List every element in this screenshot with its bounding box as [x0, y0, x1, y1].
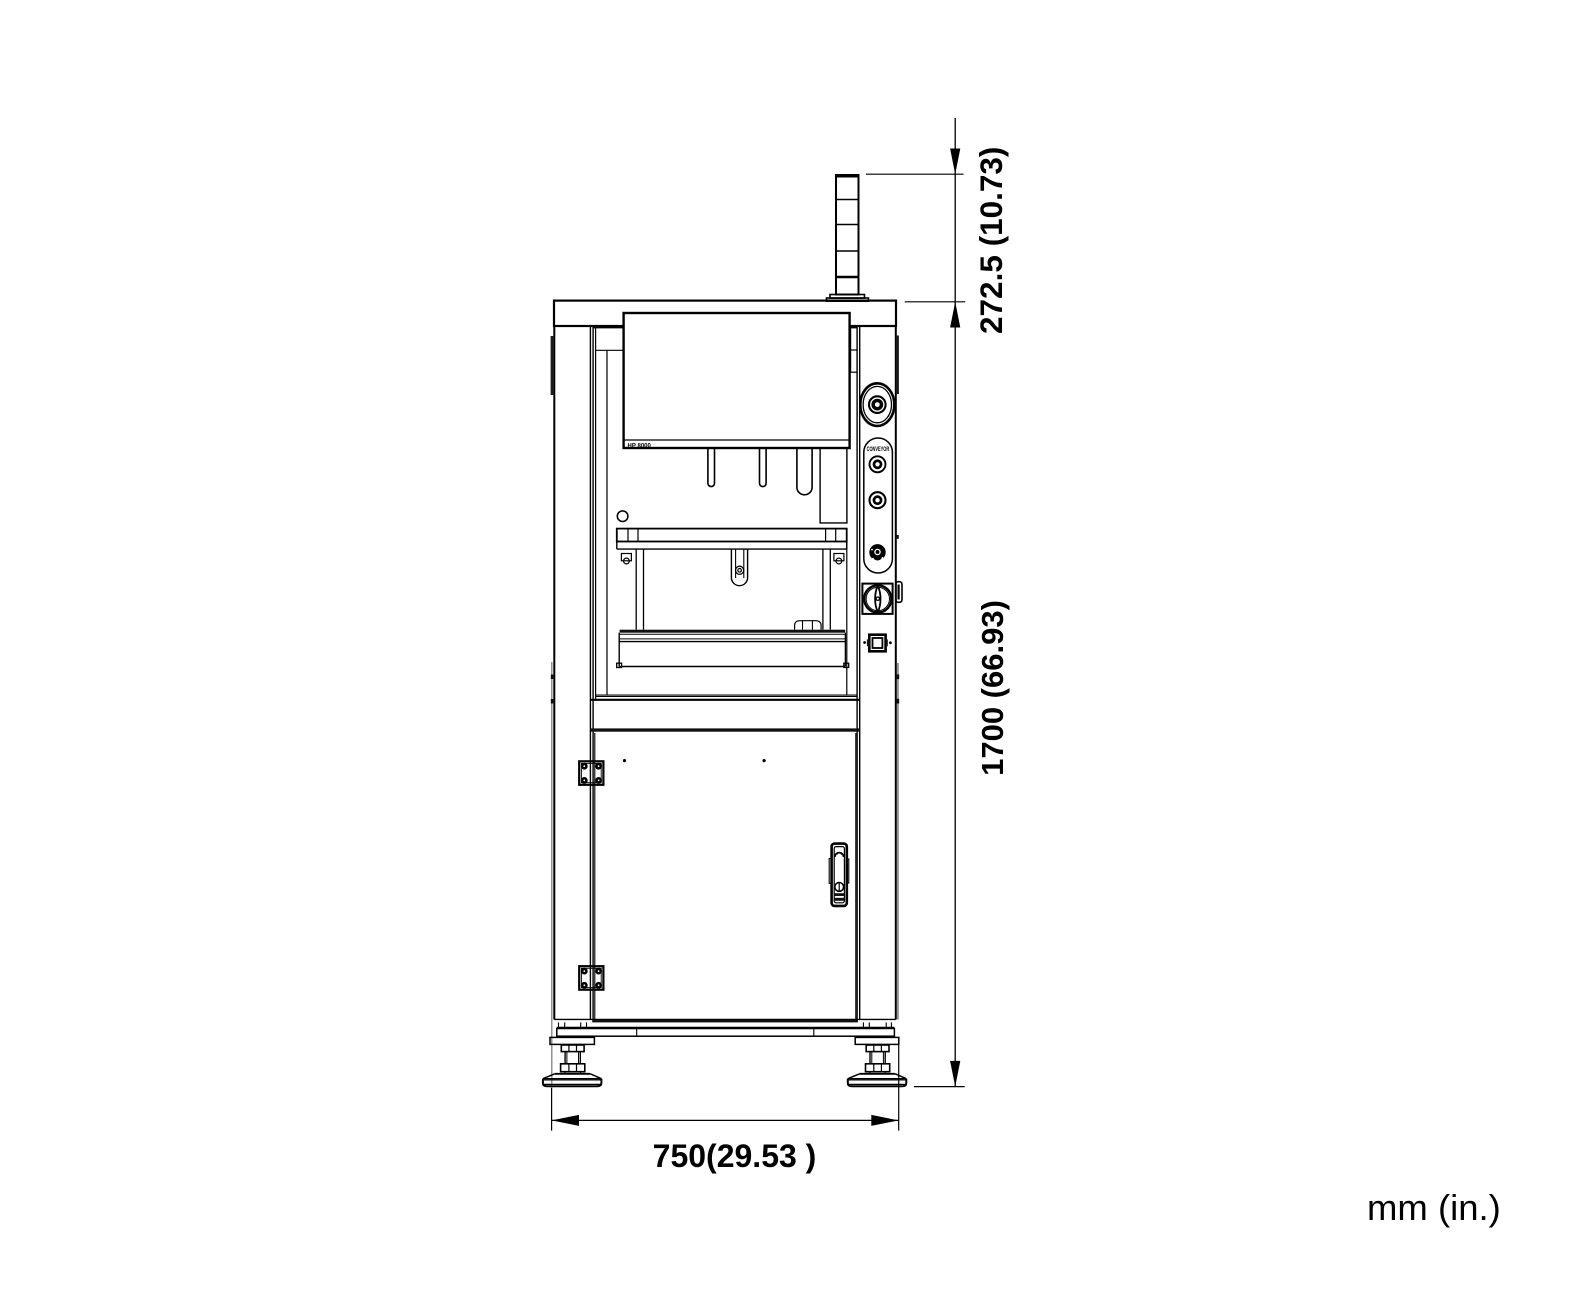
svg-text:272.5 (10.73): 272.5 (10.73): [973, 147, 1009, 334]
svg-text:1700 (66.93): 1700 (66.93): [975, 600, 1010, 776]
svg-text:HP 8000: HP 8000: [628, 444, 652, 450]
svg-text:mm (in.): mm (in.): [1367, 1187, 1501, 1228]
svg-text:750(29.53 ): 750(29.53 ): [653, 1138, 817, 1174]
svg-text:CONVEYOR: CONVEYOR: [867, 446, 890, 453]
